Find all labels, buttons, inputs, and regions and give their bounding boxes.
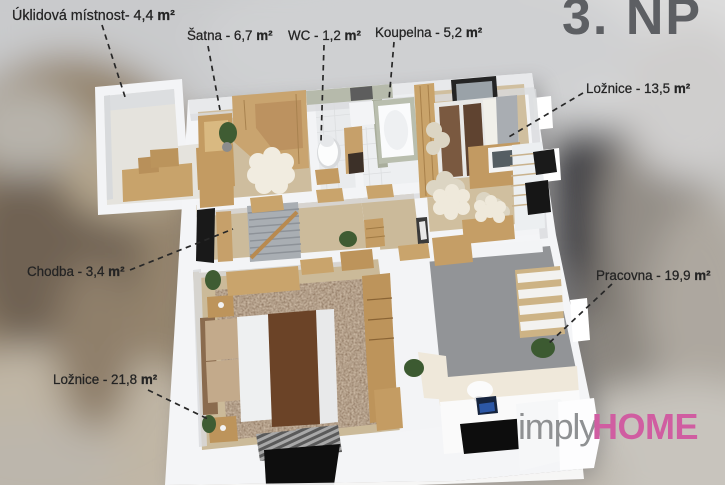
svg-text:Úklidová místnost- 4,4 m²: Úklidová místnost- 4,4 m² (12, 7, 175, 24)
svg-text:WC - 1,2 m²: WC - 1,2 m² (288, 28, 361, 43)
svg-text:HOME: HOME (592, 406, 698, 447)
svg-text:Ložnice - 13,5 m²: Ložnice - 13,5 m² (586, 81, 691, 96)
svg-text:3. NP: 3. NP (562, 0, 702, 46)
svg-text:Šatna - 6,7 m²: Šatna - 6,7 m² (187, 28, 273, 43)
svg-text:imply: imply (518, 406, 597, 447)
svg-text:Ložnice - 21,8 m²: Ložnice - 21,8 m² (53, 372, 158, 387)
svg-text:Pracovna - 19,9 m²: Pracovna - 19,9 m² (596, 268, 711, 283)
svg-text:Chodba - 3,4 m²: Chodba - 3,4 m² (27, 264, 125, 279)
svg-text:Koupelna - 5,2 m²: Koupelna - 5,2 m² (375, 25, 483, 40)
